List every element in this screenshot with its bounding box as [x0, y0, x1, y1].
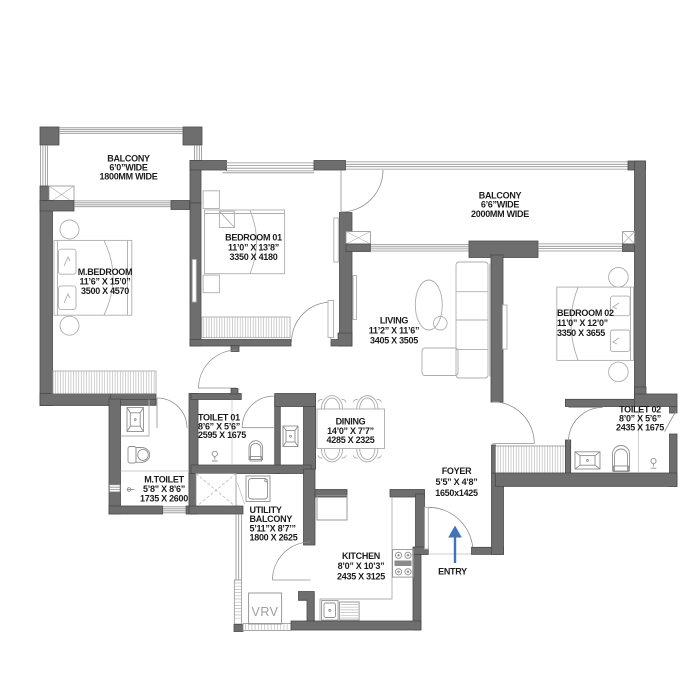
svg-text:2595 X 1675: 2595 X 1675: [198, 430, 246, 440]
svg-text:1650x1425: 1650x1425: [435, 488, 478, 498]
svg-text:2000MM WIDE: 2000MM WIDE: [471, 209, 529, 219]
svg-text:LIVING: LIVING: [380, 316, 409, 326]
svg-text:BEDROOM 02: BEDROOM 02: [557, 308, 614, 318]
svg-text:5’5” X 4’8”: 5’5” X 4’8”: [436, 477, 478, 487]
svg-text:3405 X 3505: 3405 X 3505: [370, 335, 418, 345]
svg-text:1800 X 2625: 1800 X 2625: [250, 533, 298, 543]
svg-text:KITCHEN: KITCHEN: [342, 551, 380, 561]
svg-text:8’0” X 10’3”: 8’0” X 10’3”: [338, 561, 385, 571]
svg-text:ENTRY: ENTRY: [438, 567, 467, 577]
svg-text:M.TOILET: M.TOILET: [144, 475, 184, 485]
svg-text:3350 X 3655: 3350 X 3655: [557, 328, 605, 338]
svg-text:VRV: VRV: [252, 605, 279, 619]
svg-text:FOYER: FOYER: [442, 466, 472, 476]
svg-text:1735 X 2600: 1735 X 2600: [140, 494, 188, 504]
svg-text:11’0” X 13’8”: 11’0” X 13’8”: [228, 242, 279, 252]
svg-text:4285 X 2325: 4285 X 2325: [327, 435, 375, 445]
svg-text:3500 X 4570: 3500 X 4570: [81, 286, 129, 296]
svg-text:M.BEDROOM: M.BEDROOM: [78, 267, 132, 277]
svg-text:11’2” X 11’6”: 11’2” X 11’6”: [369, 326, 419, 336]
svg-text:11’6” X 15’0”: 11’6” X 15’0”: [80, 277, 131, 287]
svg-text:11’0” X 12’0”: 11’0” X 12’0”: [557, 318, 608, 328]
svg-text:5’8” X 8’6”: 5’8” X 8’6”: [143, 484, 185, 494]
svg-text:2435 X 3125: 2435 X 3125: [337, 571, 385, 581]
svg-text:3350 X 4180: 3350 X 4180: [230, 252, 278, 262]
svg-text:BEDROOM 01: BEDROOM 01: [225, 233, 282, 243]
svg-text:2435 X 1675: 2435 X 1675: [616, 423, 664, 433]
svg-text:1800MM WIDE: 1800MM WIDE: [100, 172, 158, 182]
